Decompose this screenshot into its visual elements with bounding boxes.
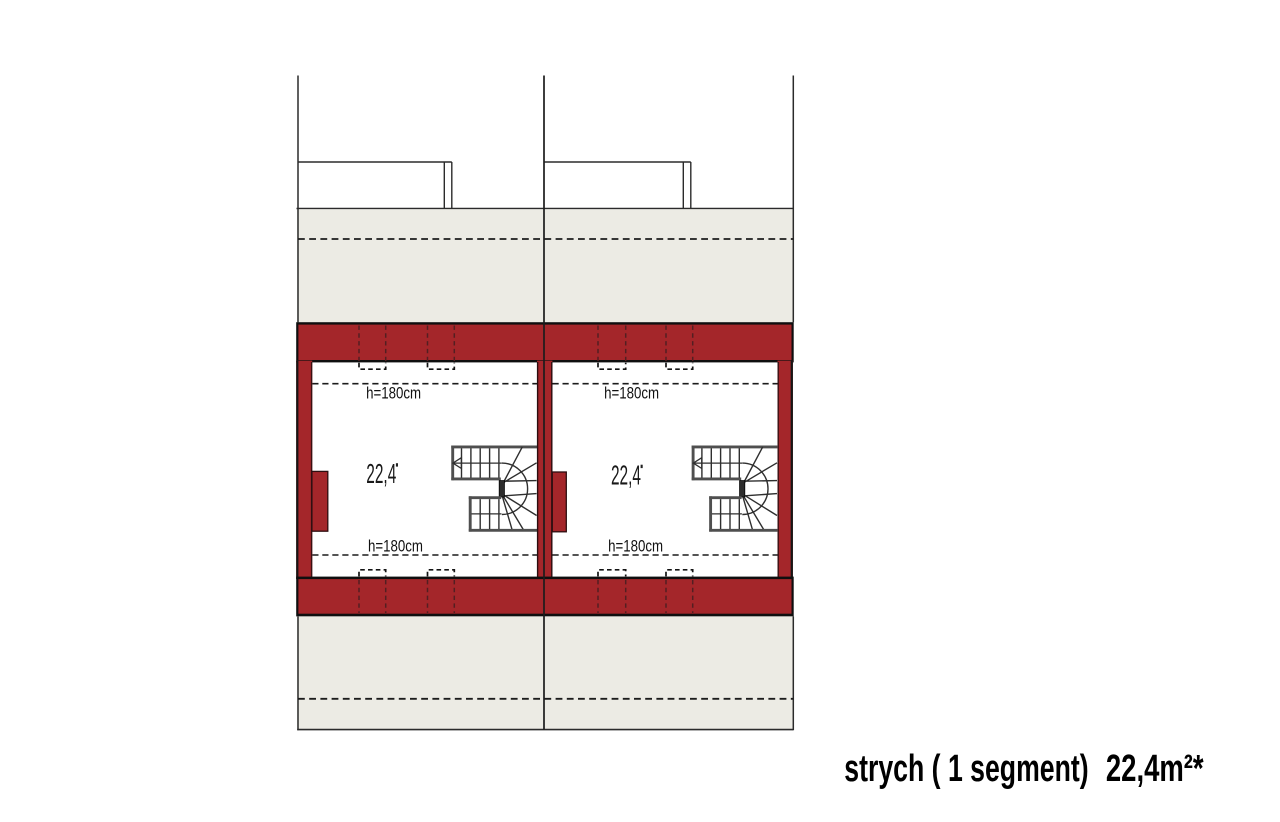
svg-text:22,4: 22,4 xyxy=(611,460,641,491)
svg-text:h=180cm: h=180cm xyxy=(366,384,421,403)
svg-text:h=180cm: h=180cm xyxy=(604,384,659,403)
svg-text:h=180cm: h=180cm xyxy=(368,537,423,556)
svg-text:22,4: 22,4 xyxy=(366,458,396,489)
svg-text:22,4m²*: 22,4m²* xyxy=(1106,747,1204,790)
svg-text:h=180cm: h=180cm xyxy=(608,537,663,556)
svg-text:strych ( 1 segment): strych ( 1 segment) xyxy=(844,747,1088,790)
